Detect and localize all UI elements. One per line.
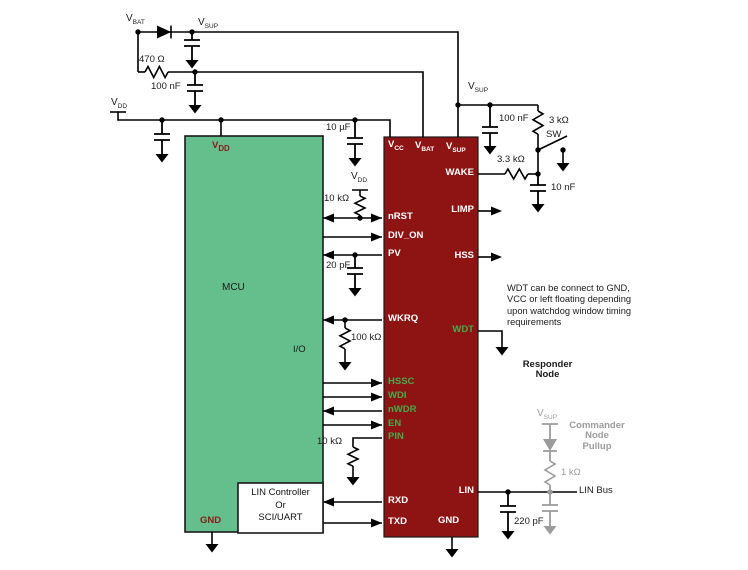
resistor-10k-nrst-label: 10 kΩ [324,194,349,204]
ic-pin-lin: LIN [459,486,474,496]
responder-node-label: Responder Node [505,360,590,381]
resistor-470-label: 470 Ω [139,55,165,65]
wdt-note-line4: requirements [507,317,649,328]
ic-pin-vsup: VSUP [446,142,466,154]
resistor-100k-label: 100 kΩ [351,333,381,343]
wdt-note-line3: upon watchdog window timing [507,306,649,317]
cap-vsup-filter [184,32,200,60]
ic-pin-nwdr: nWDR [388,405,417,415]
mcu-io-label: I/O [293,345,306,355]
ic-pin-en: EN [388,419,401,429]
ic-pin-pv: PV [388,249,401,259]
ic-pin-pin: PIN [388,432,404,442]
lin-controller-line2: Or [238,500,323,513]
ic-pin-hssc: HSSC [388,377,414,387]
resistor-1k-label: 1 kΩ [561,468,581,478]
cap-vdd-filter [154,120,170,154]
cap-100nf-input-label: 100 nF [151,82,181,92]
mcu-gnd-pin-label: GND [200,516,221,526]
commander-junction-dot [547,489,552,494]
commander-node-line3: Pullup [556,442,638,452]
resistor-10k-nrst [352,190,368,218]
schematic-canvas: VBAT VSUP VDD VSUP VDD VSUP 470 Ω 100 nF… [0,0,748,570]
vsup-supply-label: VSUP [198,17,218,31]
cap-10nf-label: 10 nF [551,183,575,193]
ic-pin-wkrq: WKRQ [388,314,418,324]
lin-bus-label: LIN Bus [579,486,613,496]
wdt-note-line2: VCC or left floating depending [507,294,649,305]
ic-pin-nrst: nRST [388,212,413,222]
resistor-3k [533,105,543,150]
ic-pin-wdt: WDT [452,325,474,335]
ic-pin-wdi: WDI [388,391,406,401]
resistor-3p3k-label: 3.3 kΩ [497,155,525,165]
ic-pin-limp: LIMP [451,205,474,215]
mcu-vdd-pin-label: VDD [212,141,230,154]
vdd-pullup-label: VDD [351,171,367,185]
responder-node-line2: Node [505,370,590,380]
cap-100nf-vsup-label: 100 nF [499,114,529,124]
vbat-supply-label: VBAT [126,13,145,27]
commander-ground [544,526,557,535]
cap-220pf-label: 220 pF [514,517,544,527]
commander-node-pullup-label: Commander Node Pullup [556,421,638,452]
cap-10nf [530,174,546,204]
ic-pin-rxd: RXD [388,496,408,506]
lin-controller-line3: SCI/UART [238,512,323,525]
vdd-supply-label: VDD [111,97,127,111]
wdt-note: WDT can be connect to GND, VCC or left f… [507,283,649,329]
ic-pin-wake: WAKE [446,168,475,178]
wdt-note-line1: WDT can be connect to GND, [507,283,649,294]
transceiver-ic-block [384,137,478,537]
mcu-title: MCU [222,282,245,293]
vsup-ic-label: VSUP [468,81,488,95]
ic-pin-vbat: VBAT [415,141,434,153]
diode-reverse-protection [157,26,171,39]
ic-pin-div-on: DIV_ON [388,231,423,241]
lin-controller-line1: LIN Controller [238,487,323,500]
ic-pin-vcc: VCC [388,140,404,152]
ic-pin-txd: TXD [388,517,407,527]
cap-10uf-label: 10 µF [326,123,350,133]
lin-controller-label: LIN Controller Or SCI/UART [238,487,323,525]
resistor-100k-wkrq [340,320,350,362]
resistor-3k-label: 3 kΩ [549,116,569,126]
commander-diode [543,439,557,451]
resistor-470 [145,67,168,78]
ic-pin-gnd: GND [438,516,459,526]
switch-sw-label: SW [546,130,561,140]
ic-pin-hss: HSS [454,251,474,261]
cap-100nf-input [187,72,203,105]
cap-100nf-vsup [482,105,498,146]
vsup-commander-label: VSUP [537,408,557,422]
resistor-10k-pin-label: 10 kΩ [317,437,342,447]
mcu-block [185,136,323,532]
resistor-10k-pin [348,438,382,477]
cap-20pf-label: 20 pF [326,261,350,271]
